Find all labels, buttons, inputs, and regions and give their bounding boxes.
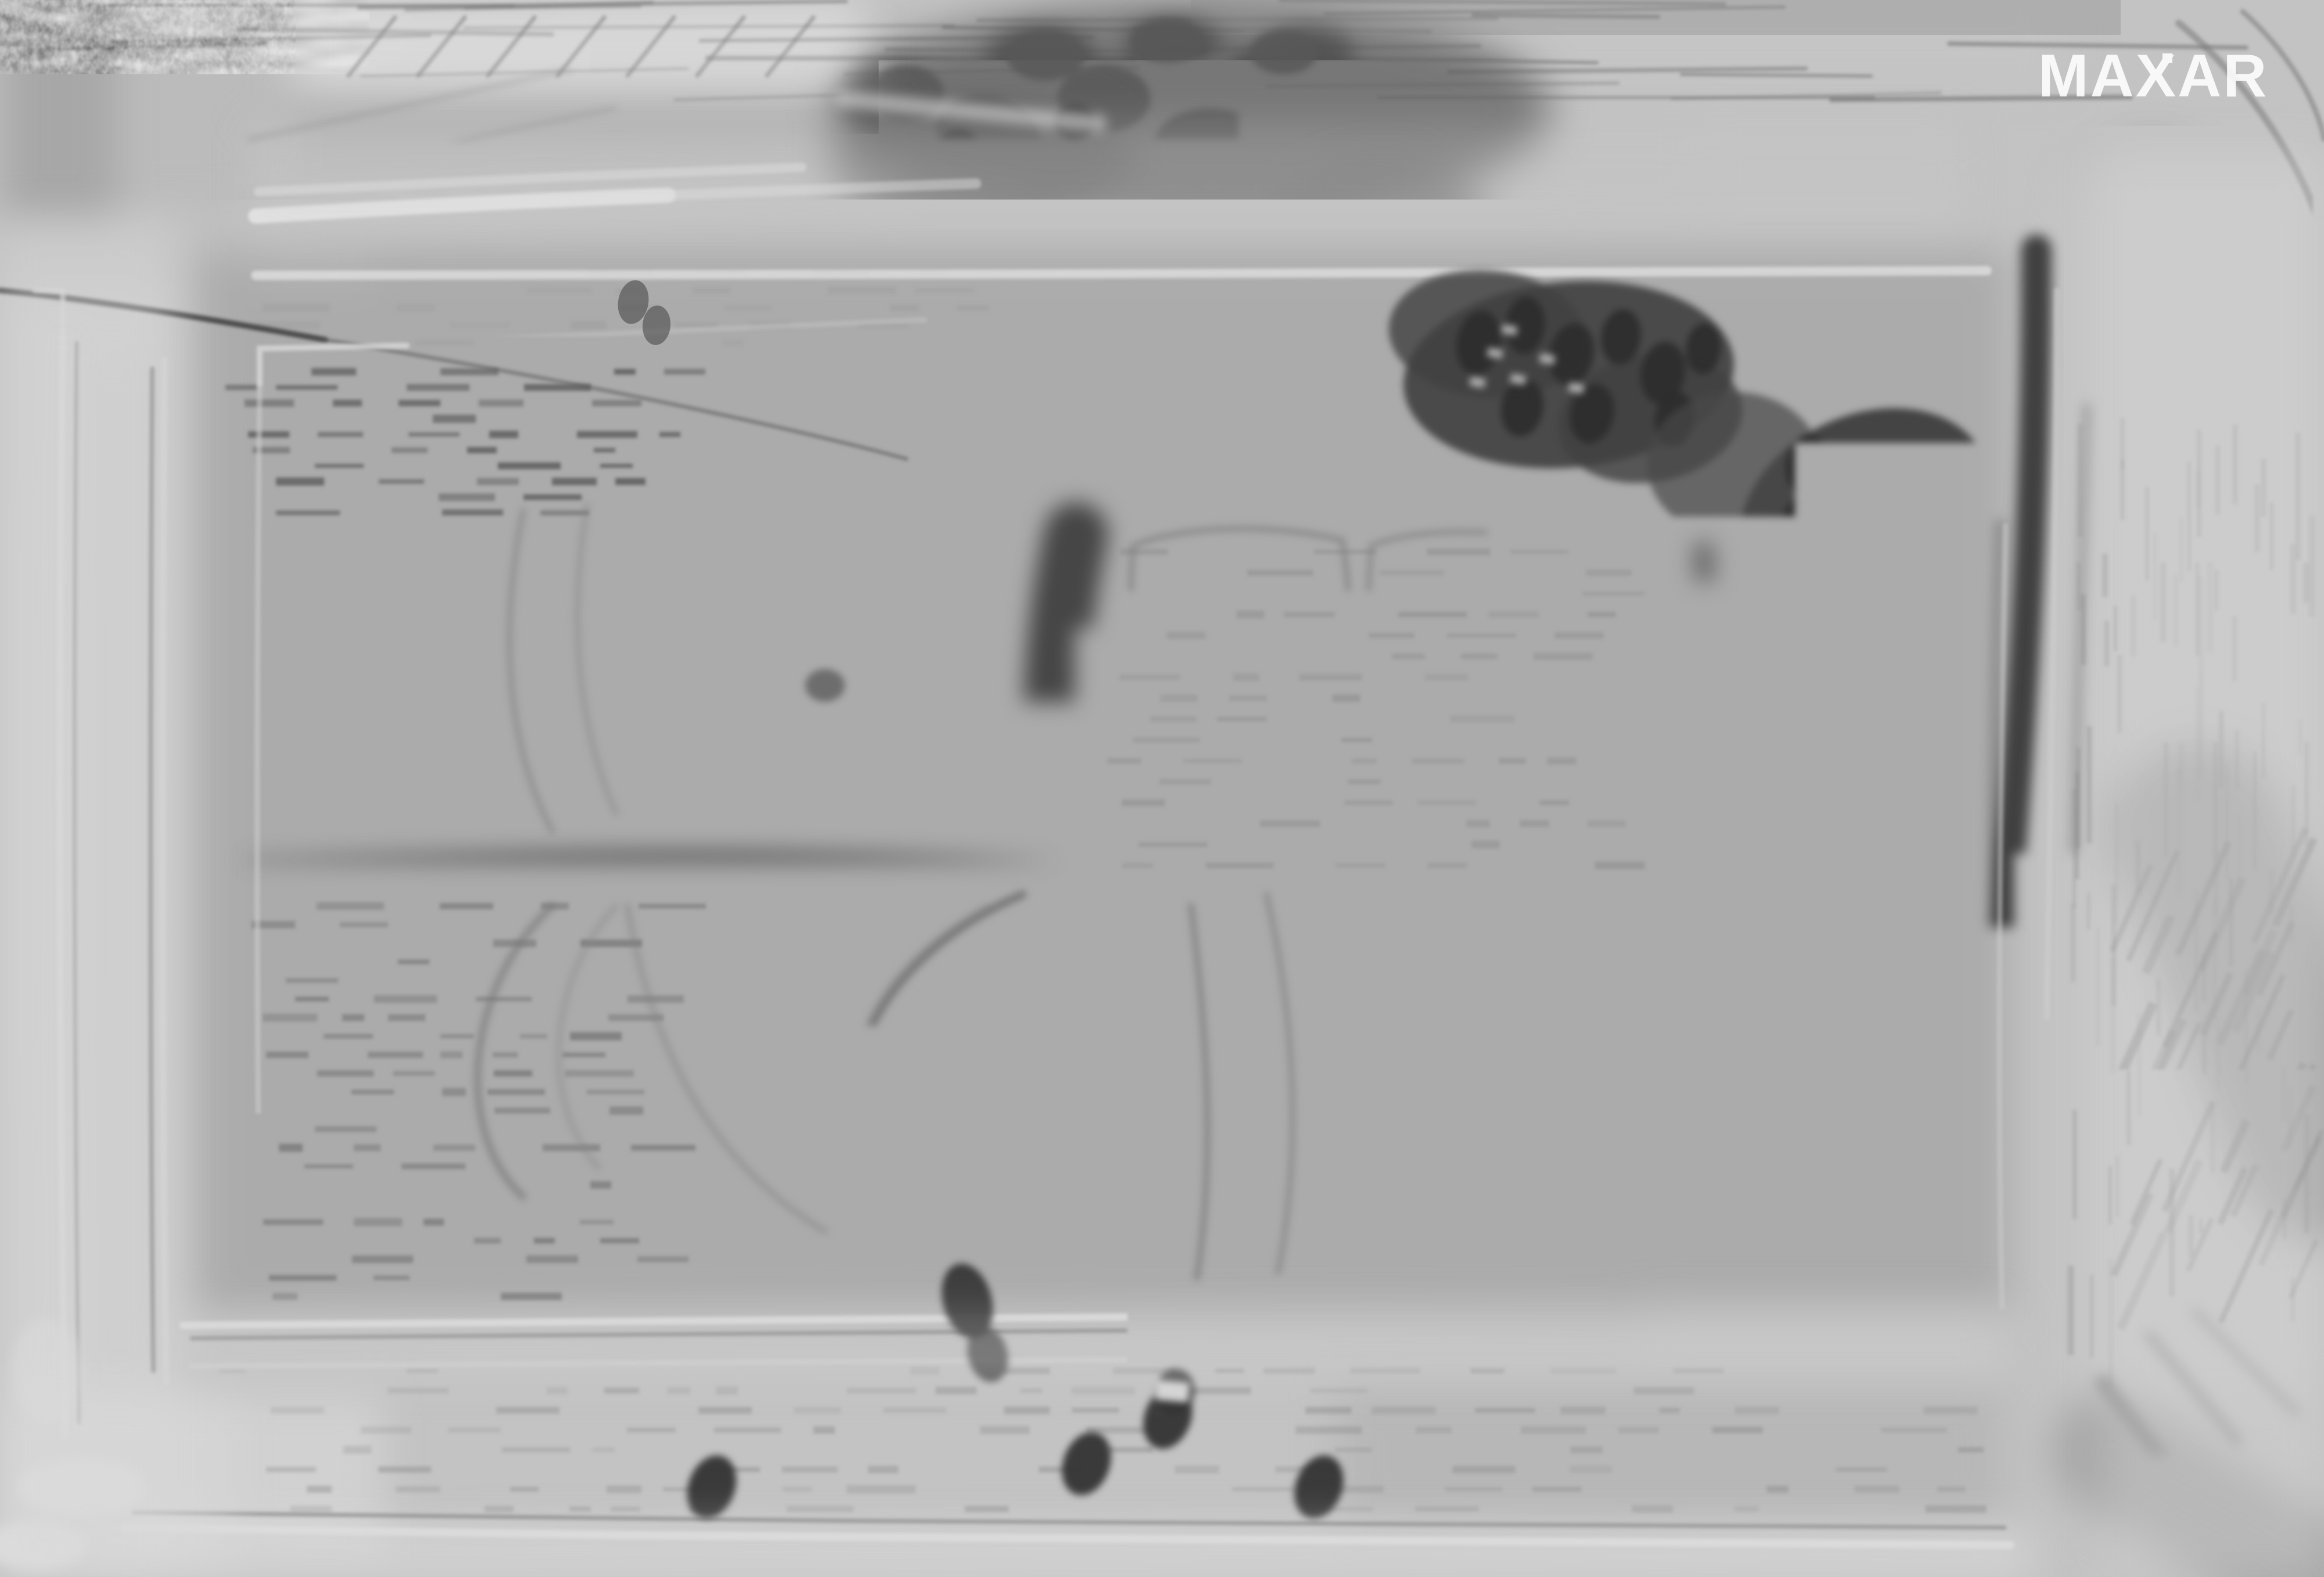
svg-text:MAXAR: MAXAR [2038,42,2268,110]
